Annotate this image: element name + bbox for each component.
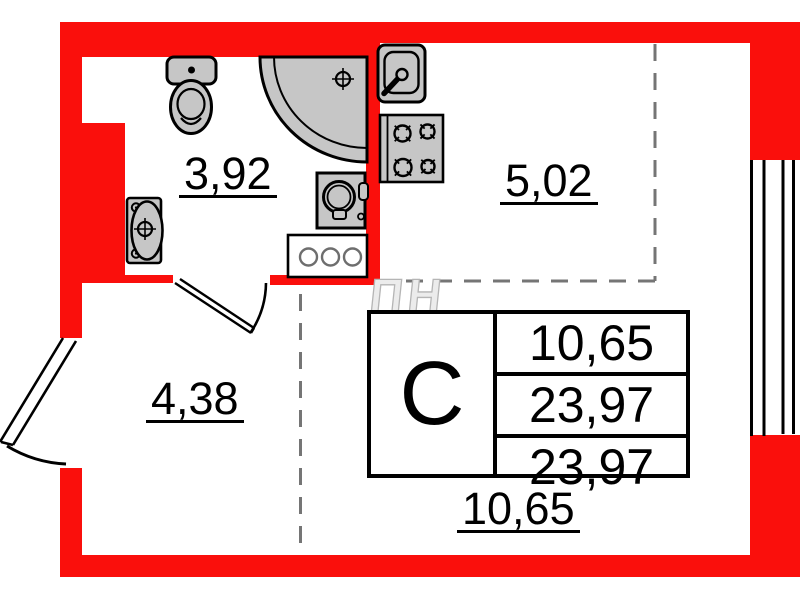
apartment-type-cell: С bbox=[371, 314, 497, 474]
bathroom-sink-icon bbox=[127, 198, 163, 263]
stove-icon bbox=[380, 115, 443, 184]
overall-area-value: 23,97 bbox=[497, 434, 686, 496]
apartment-info-table: С 10,65 23,97 23,97 bbox=[367, 310, 690, 478]
hallway-area-label: 4,38 bbox=[146, 381, 244, 423]
washing-machine-icon bbox=[317, 173, 368, 228]
entrance-door bbox=[0, 338, 76, 464]
kitchen-area-label: 5,02 bbox=[500, 163, 598, 205]
bathroom-door bbox=[175, 279, 266, 333]
bathroom-area-label: 3,92 bbox=[179, 156, 277, 198]
apartment-info-values: 10,65 23,97 23,97 bbox=[497, 314, 686, 474]
shower-icon bbox=[260, 57, 367, 162]
window-right bbox=[752, 160, 794, 436]
living-room-area-label: 10,65 bbox=[457, 491, 580, 533]
total-area-value: 23,97 bbox=[497, 372, 686, 434]
living-area-value: 10,65 bbox=[497, 314, 686, 372]
floor-plan: ПН 3,92 5,02 4,38 10,65 С 10,65 23,97 23… bbox=[0, 0, 800, 600]
kitchen-sink-icon bbox=[378, 45, 425, 102]
cabinet-icon bbox=[288, 235, 367, 277]
toilet-icon bbox=[167, 57, 216, 134]
